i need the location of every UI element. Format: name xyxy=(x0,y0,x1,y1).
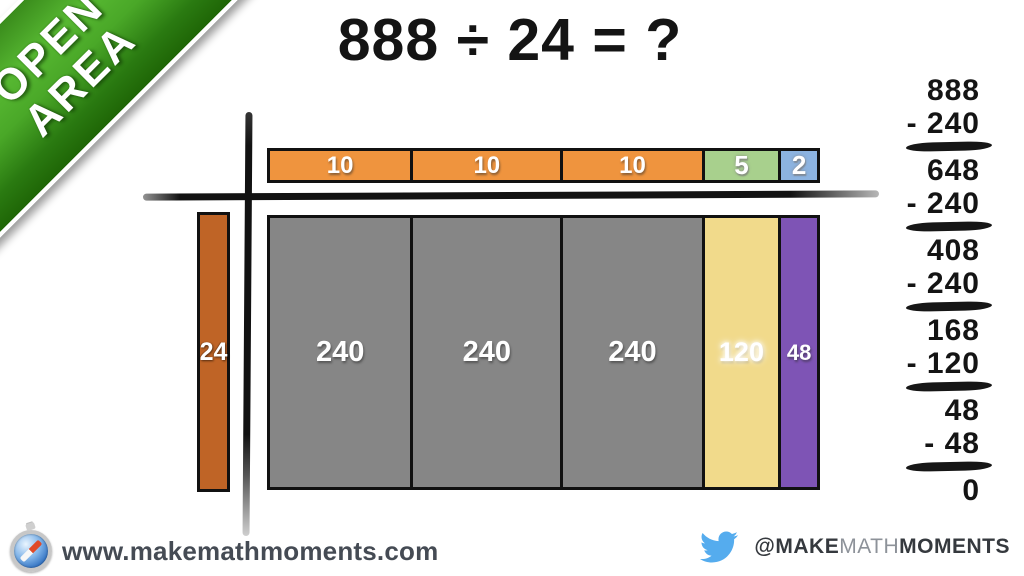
compass-needle xyxy=(20,540,43,563)
area-segment-120: 120 xyxy=(702,218,779,487)
subtraction-step: - 240 xyxy=(907,107,994,140)
subtraction-work: 888 - 240 648 - 240 408 - 240 168 - 120 … xyxy=(862,74,994,507)
quotient-label: 2 xyxy=(792,150,806,181)
subtraction-value: 648 xyxy=(927,154,994,187)
quotient-bar: 10 10 10 5 2 xyxy=(267,148,820,183)
subtraction-step: - 120 xyxy=(907,347,994,380)
subtraction-line xyxy=(906,141,992,152)
ribbon-text: OPEN AREA xyxy=(0,0,145,145)
title-equation: 888 ÷ 24 = ? xyxy=(290,6,730,74)
divisor-bar: 24 xyxy=(197,212,230,492)
subtraction-step: - 48 xyxy=(924,427,994,460)
subtraction-step: - 240 xyxy=(907,267,994,300)
handle-suffix: MOMENTS xyxy=(899,535,1010,558)
handle-middle: MATH xyxy=(839,535,899,558)
subtraction-step: - 240 xyxy=(907,187,994,220)
quotient-label: 10 xyxy=(619,152,646,180)
area-label: 120 xyxy=(719,337,764,368)
area-segment-240-1: 240 xyxy=(270,218,410,487)
subtraction-value: 168 xyxy=(927,314,994,347)
subtraction-line xyxy=(906,381,992,392)
quotient-segment-2: 2 xyxy=(778,151,817,180)
area-label: 240 xyxy=(608,336,656,369)
area-segment-48: 48 xyxy=(778,218,817,487)
subtraction-value: 888 xyxy=(927,74,994,107)
horizontal-axis-line xyxy=(143,190,879,200)
compass-crown xyxy=(25,522,36,531)
subtraction-line xyxy=(906,221,992,232)
compass-icon xyxy=(10,530,52,572)
quotient-segment-5: 5 xyxy=(702,151,779,180)
quotient-segment-10-1: 10 xyxy=(270,151,410,180)
footer-twitter: @MAKEMATHMOMENTS xyxy=(696,528,1010,566)
subtraction-value: 48 xyxy=(945,394,994,427)
area-label: 48 xyxy=(787,340,811,366)
quotient-segment-10-3: 10 xyxy=(560,151,701,180)
quotient-label: 10 xyxy=(327,152,354,180)
website-url: www.makemathmoments.com xyxy=(62,536,438,567)
twitter-bird-icon xyxy=(696,528,742,566)
quotient-label: 10 xyxy=(473,152,500,180)
subtraction-result: 0 xyxy=(962,474,994,507)
area-label: 240 xyxy=(463,336,511,369)
subtraction-value: 408 xyxy=(927,234,994,267)
quotient-segment-10-2: 10 xyxy=(410,151,560,180)
subtraction-line xyxy=(906,301,992,312)
area-segment-240-2: 240 xyxy=(410,218,560,487)
area-label: 240 xyxy=(316,336,364,369)
twitter-handle: @MAKEMATHMOMENTS xyxy=(754,535,1010,559)
handle-prefix: @MAKE xyxy=(754,535,839,558)
footer-website: www.makemathmoments.com xyxy=(10,530,438,572)
vertical-axis-line xyxy=(243,112,253,536)
area-segment-240-3: 240 xyxy=(560,218,701,487)
divisor-label: 24 xyxy=(200,338,228,367)
math-slide: OPEN AREA 888 ÷ 24 = ? 10 10 10 5 2 24 2… xyxy=(0,0,1024,576)
area-rectangle: 240 240 240 120 48 xyxy=(267,215,820,490)
subtraction-line xyxy=(906,461,992,472)
open-area-ribbon: OPEN AREA xyxy=(0,0,271,271)
quotient-label: 5 xyxy=(734,150,748,181)
